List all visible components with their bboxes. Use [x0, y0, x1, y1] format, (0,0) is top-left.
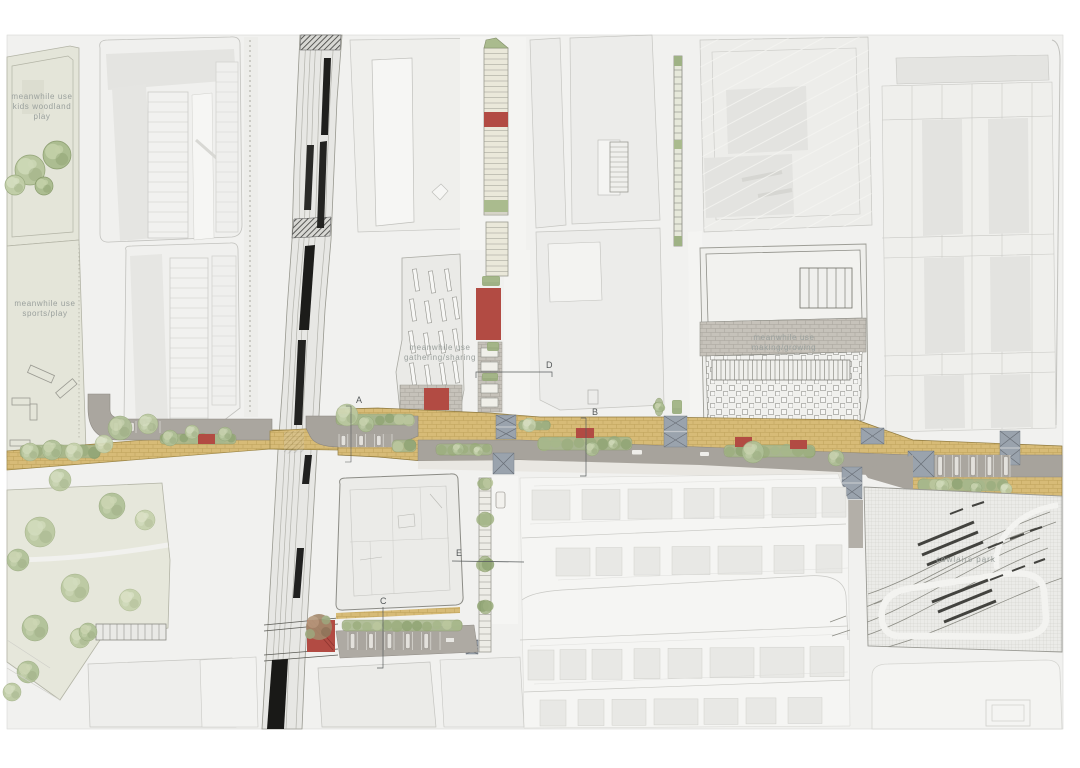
svg-text:meanwhile use: meanwhile use	[409, 343, 470, 352]
svg-text:D: D	[546, 360, 553, 370]
svg-text:meanwhile use: meanwhile use	[11, 92, 72, 101]
svg-text:cowlairs park: cowlairs park	[936, 555, 996, 564]
svg-text:meanwhile use: meanwhile use	[14, 299, 75, 308]
svg-text:B: B	[592, 407, 599, 417]
svg-text:gathering/sharing: gathering/sharing	[404, 353, 476, 362]
svg-text:meanwhile use: meanwhile use	[753, 333, 814, 342]
svg-text:A: A	[356, 395, 363, 405]
svg-text:E: E	[456, 548, 463, 558]
svg-text:C: C	[380, 596, 387, 606]
svg-text:kids woodland: kids woodland	[13, 102, 72, 111]
svg-text:sports/play: sports/play	[22, 309, 67, 318]
svg-text:play: play	[33, 112, 50, 121]
svg-text:making/growing: making/growing	[752, 343, 816, 352]
